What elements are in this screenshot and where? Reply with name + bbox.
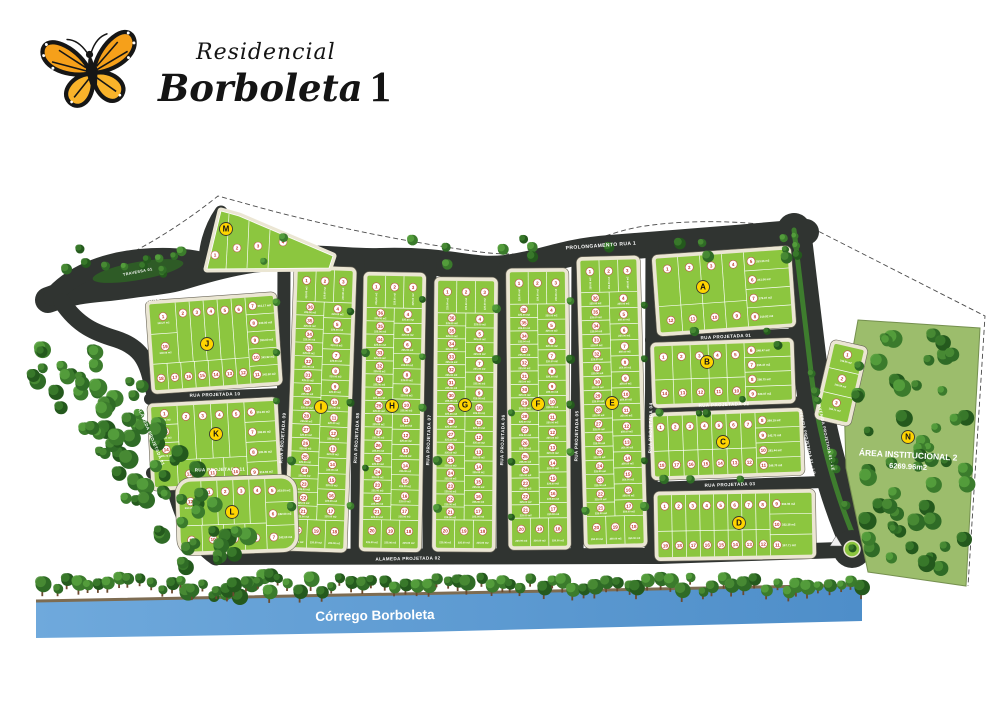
svg-text:225.00 m2: 225.00 m2	[474, 338, 487, 341]
lot-number: 18	[659, 463, 665, 468]
svg-text:220.00 m2: 220.00 m2	[328, 542, 341, 545]
lot-number: 19	[461, 529, 467, 534]
logo-number: 1	[363, 64, 392, 111]
svg-text:220.00 m2: 220.00 m2	[331, 328, 344, 331]
lot-number: 22	[301, 495, 307, 500]
lot-number: 32	[449, 367, 455, 372]
svg-text:367.71 m2: 367.71 m2	[782, 543, 796, 547]
lot-number: 18	[332, 529, 338, 534]
lot-number: 30	[305, 386, 311, 391]
lot-number: 13	[747, 542, 753, 547]
svg-text:225.00 m2: 225.00 m2	[595, 512, 608, 515]
svg-text:225.00 m2: 225.00 m2	[593, 456, 606, 459]
lot-number: 19	[388, 529, 394, 534]
svg-text:225.00 m2: 225.00 m2	[518, 340, 531, 343]
svg-text:225.00 m2: 225.00 m2	[298, 474, 311, 477]
lot-number: 26	[596, 435, 602, 440]
svg-text:225.00 m2: 225.00 m2	[372, 463, 385, 466]
svg-text:305.00 m2: 305.00 m2	[258, 449, 272, 454]
lot-number: 32	[522, 360, 528, 365]
svg-text:225.00 m2: 225.00 m2	[399, 500, 412, 503]
lot-number: 13	[732, 460, 738, 465]
svg-text:225.00 m2: 225.00 m2	[375, 292, 378, 305]
lot-number: 1	[214, 253, 217, 258]
svg-text:225.00 m2: 225.00 m2	[403, 542, 416, 545]
svg-text:225.00 m2: 225.00 m2	[474, 353, 487, 356]
svg-text:225.00 m2: 225.00 m2	[444, 477, 457, 480]
svg-text:225.00 m2: 225.00 m2	[594, 484, 607, 487]
lot-number: 14	[733, 542, 739, 547]
svg-text:225.00 m2: 225.00 m2	[374, 344, 387, 347]
lot-number: 19	[162, 344, 168, 349]
lot-number: 35	[378, 324, 384, 329]
lot-number: 12	[624, 424, 630, 429]
lot-number: 14	[550, 461, 556, 466]
lot-number: 12	[241, 370, 247, 375]
road-rua-07	[429, 264, 430, 554]
svg-text:225.00 m2: 225.00 m2	[519, 407, 532, 410]
lot-number: 31	[449, 380, 455, 385]
lot-number: 13	[680, 390, 686, 395]
svg-text:225.00 m2: 225.00 m2	[592, 386, 605, 389]
svg-text:250.00 m2: 250.00 m2	[622, 494, 635, 497]
svg-text:225.00 m2: 225.00 m2	[303, 352, 316, 355]
lot-number: 19	[613, 525, 619, 530]
svg-text:225.00 m2: 225.00 m2	[590, 316, 603, 319]
street-label: RUA PROJETADA 05	[574, 410, 580, 461]
lot-number: 32	[306, 359, 312, 364]
svg-text:225.00 m2: 225.00 m2	[304, 325, 317, 328]
block-letter: F	[536, 400, 541, 409]
svg-text:220.00 m2: 220.00 m2	[329, 391, 342, 394]
lot-number: 33	[377, 350, 383, 355]
svg-text:220.00 m2: 220.00 m2	[330, 360, 343, 363]
block-letter: N	[905, 433, 911, 442]
svg-text:220.00 m2: 220.00 m2	[547, 452, 560, 455]
svg-text:220.00 m2: 220.00 m2	[547, 467, 560, 470]
svg-text:225.00 m2: 225.00 m2	[301, 393, 314, 396]
lot-number: 31	[377, 377, 383, 382]
lot-number: 20	[594, 525, 600, 530]
svg-text:220.00 m2: 220.00 m2	[546, 330, 559, 333]
street-label: RUA PROJETADA 11	[195, 467, 246, 473]
svg-text:281.44 m2: 281.44 m2	[768, 448, 782, 452]
svg-text:225.00 m2: 225.00 m2	[401, 379, 414, 382]
butterfly-icon	[24, 12, 158, 118]
lot-number: 15	[402, 479, 408, 484]
svg-text:225.00 m2: 225.00 m2	[399, 455, 412, 458]
svg-text:320.07 m2: 320.07 m2	[758, 392, 772, 396]
block-letter: D	[736, 519, 742, 528]
lot-number: 10	[774, 522, 780, 527]
lot-number: 36	[593, 296, 599, 301]
lot-number: 20	[443, 529, 449, 534]
lot-number: 29	[448, 406, 454, 411]
svg-text:220.00 m2: 220.00 m2	[342, 287, 345, 300]
lot-number: 36	[378, 311, 384, 316]
lot-number: 17	[674, 462, 680, 467]
svg-text:250.00 m2: 250.00 m2	[591, 538, 604, 541]
lot-number: 28	[596, 407, 602, 412]
svg-text:225.00 m2: 225.00 m2	[484, 298, 487, 311]
svg-text:220.00 m2: 220.00 m2	[328, 406, 341, 409]
lot-number: 13	[330, 446, 336, 451]
lot-number: 33	[522, 347, 528, 352]
svg-text:225.00 m2: 225.00 m2	[301, 406, 314, 409]
lot-number: 18	[480, 529, 486, 534]
svg-text:220.00 m2: 220.00 m2	[555, 288, 558, 301]
block-B: 1234514131211106248.47 m27295.47 m28298.…	[650, 338, 796, 409]
lot-number: 11	[331, 415, 336, 420]
lot-number: 20	[369, 528, 375, 533]
svg-text:225.00 m2: 225.00 m2	[473, 397, 486, 400]
svg-text:225.00 m2: 225.00 m2	[445, 387, 458, 390]
svg-text:225.00 m2: 225.00 m2	[591, 358, 604, 361]
lot-number: 29	[376, 403, 382, 408]
lot-number: 16	[402, 494, 408, 499]
svg-text:250.00 m2: 250.00 m2	[610, 537, 623, 540]
lot-number: 12	[668, 318, 674, 323]
lot-number: 15	[200, 373, 206, 378]
lot-number: 24	[448, 471, 454, 476]
lot-number: 23	[375, 483, 381, 488]
svg-text:360.06 m2: 360.06 m2	[782, 502, 796, 506]
lot-number: 11	[476, 420, 481, 425]
svg-text:225.00 m2: 225.00 m2	[446, 297, 449, 310]
svg-text:225.00 m2: 225.00 m2	[374, 317, 387, 320]
block-letter: M	[223, 225, 230, 234]
svg-text:220.00 m2: 220.00 m2	[546, 360, 559, 363]
svg-text:225.00 m2: 225.00 m2	[590, 344, 603, 347]
svg-text:225.00 m2: 225.00 m2	[519, 434, 532, 437]
block-letter: I	[320, 403, 322, 412]
block-letter: J	[205, 340, 209, 349]
block-letter: A	[700, 283, 706, 292]
block-letter: L	[230, 508, 235, 517]
svg-text:242.00 m2: 242.00 m2	[279, 535, 293, 539]
lot-number: 14	[662, 391, 668, 396]
lot-number: 32	[377, 364, 383, 369]
lot-number: 16	[705, 543, 711, 548]
lot-number: 18	[631, 524, 637, 529]
svg-text:225.00 m2: 225.00 m2	[373, 423, 386, 426]
svg-text:225.00 m2: 225.00 m2	[472, 471, 485, 474]
lot-number: 10	[734, 388, 740, 393]
lot-number: 10	[332, 400, 338, 405]
svg-text:225.00 m2: 225.00 m2	[439, 541, 452, 544]
svg-text:225.00 m2: 225.00 m2	[520, 501, 533, 504]
svg-text:250.00 m2: 250.00 m2	[622, 462, 635, 465]
lot-number: 24	[375, 470, 381, 475]
svg-text:225.00 m2: 225.00 m2	[519, 394, 532, 397]
svg-text:250.00 m2: 250.00 m2	[619, 366, 632, 369]
lot-number: 25	[448, 458, 454, 463]
block-letter: K	[213, 430, 219, 439]
lot-number: 24	[523, 467, 529, 472]
lot-number: 32	[594, 352, 600, 357]
svg-text:225.00 m2: 225.00 m2	[595, 498, 608, 501]
svg-text:246.70 m2: 246.70 m2	[769, 463, 783, 467]
lot-number: 23	[448, 484, 454, 489]
svg-text:220.00 m2: 220.00 m2	[547, 513, 560, 516]
block-A: 123412111095253.36 m26241.06 m27279.97 m…	[651, 245, 796, 337]
lot-number: 26	[448, 445, 454, 450]
svg-text:225.00 m2: 225.00 m2	[473, 456, 486, 459]
svg-text:220.00 m2: 220.00 m2	[305, 286, 308, 299]
lot-number: 12	[550, 430, 556, 435]
lot-number: 21	[301, 509, 307, 514]
svg-text:225.00 m2: 225.00 m2	[445, 400, 458, 403]
lot-number: 2	[236, 246, 239, 251]
lot-number: 17	[551, 506, 557, 511]
svg-text:225.00 m2: 225.00 m2	[592, 400, 605, 403]
logo-name-line: Borboleta1	[158, 65, 391, 110]
svg-text:225.00 m2: 225.00 m2	[519, 461, 532, 464]
svg-text:312.92 m2: 312.92 m2	[259, 469, 273, 474]
svg-text:225.00 m2: 225.00 m2	[402, 334, 415, 337]
svg-text:225.00 m2: 225.00 m2	[519, 421, 532, 424]
svg-text:225.00 m2: 225.00 m2	[473, 382, 486, 385]
svg-text:225.00 m2: 225.00 m2	[400, 409, 413, 412]
lot-number: 16	[329, 493, 335, 498]
svg-text:225.00 m2: 225.00 m2	[371, 489, 384, 492]
svg-text:225.00 m2: 225.00 m2	[302, 379, 315, 382]
svg-text:225.00 m2: 225.00 m2	[446, 335, 459, 338]
lot-number: 35	[521, 320, 527, 325]
lot-number: 10	[253, 355, 259, 360]
svg-text:225.00 m2: 225.00 m2	[519, 380, 532, 383]
lot-number: 34	[449, 341, 455, 346]
svg-text:225.00 m2: 225.00 m2	[373, 410, 386, 413]
svg-text:225.00 m2: 225.00 m2	[297, 515, 310, 518]
lot-number: 17	[626, 504, 632, 509]
lot-number: 10	[550, 399, 556, 404]
lot-number: 10	[761, 448, 767, 453]
lot-number: 11	[716, 389, 721, 394]
svg-text:225.00 m2: 225.00 m2	[474, 323, 487, 326]
svg-text:225.00 m2: 225.00 m2	[373, 370, 386, 373]
block-letter: G	[462, 401, 468, 410]
lot-number: 29	[304, 400, 310, 405]
lot-number: 11	[255, 372, 261, 377]
svg-text:332.38 m2: 332.38 m2	[782, 522, 796, 526]
lot-number: 12	[403, 433, 409, 438]
svg-text:225.00 m2: 225.00 m2	[473, 427, 486, 430]
svg-text:220.00 m2: 220.00 m2	[546, 406, 559, 409]
block-J: 23456181716151413127361.17 m28330.00 m29…	[145, 292, 283, 395]
svg-text:225.00 m2: 225.00 m2	[445, 413, 458, 416]
lot-number: 14	[164, 447, 170, 452]
svg-text:220.00 m2: 220.00 m2	[324, 515, 337, 518]
lot-number: 29	[522, 401, 528, 406]
svg-text:253.00 m2: 253.00 m2	[277, 488, 291, 492]
lot-number: 30	[522, 387, 528, 392]
lot-number: 33	[594, 338, 600, 343]
lot-number: 11	[690, 316, 696, 321]
svg-text:225.00 m2: 225.00 m2	[519, 487, 532, 490]
lot-number: 15	[329, 478, 335, 483]
svg-text:220.00 m2: 220.00 m2	[325, 500, 338, 503]
svg-text:225.00 m2: 225.00 m2	[593, 428, 606, 431]
svg-text:225.00 m2: 225.00 m2	[472, 501, 485, 504]
svg-text:225.00 m2: 225.00 m2	[399, 470, 412, 473]
lot-number: 31	[594, 366, 600, 371]
logo-text: Residencial Borboleta1	[158, 12, 391, 110]
svg-text:220.00 m2: 220.00 m2	[547, 437, 560, 440]
lot-number: 14	[625, 456, 631, 461]
svg-text:220.00 m2: 220.00 m2	[323, 286, 326, 299]
svg-text:225.00 m2: 225.00 m2	[593, 442, 606, 445]
lot-number: 24	[597, 463, 603, 468]
svg-text:225.00 m2: 225.00 m2	[473, 368, 486, 371]
svg-text:250.00 m2: 250.00 m2	[628, 537, 641, 540]
lot-number: 25	[597, 449, 603, 454]
lot-number: 10	[712, 315, 718, 320]
lot-number: 22	[598, 491, 604, 496]
svg-text:250.00 m2: 250.00 m2	[621, 430, 634, 433]
svg-text:225.00 m2: 225.00 m2	[445, 439, 458, 442]
svg-text:220.00 m2: 220.00 m2	[518, 289, 521, 302]
svg-text:225.00 m2: 225.00 m2	[400, 440, 413, 443]
svg-text:225.00 m2: 225.00 m2	[446, 348, 459, 351]
lot-number: 34	[307, 332, 313, 337]
svg-text:225.00 m2: 225.00 m2	[372, 436, 385, 439]
svg-text:225.00 m2: 225.00 m2	[518, 314, 531, 317]
svg-text:225.00 m2: 225.00 m2	[303, 338, 316, 341]
svg-text:225.00 m2: 225.00 m2	[444, 503, 457, 506]
svg-text:225.00 m2: 225.00 m2	[393, 292, 396, 305]
lot-number: 33	[306, 345, 312, 350]
lot-number: 18	[406, 529, 412, 534]
lot-number: 27	[596, 421, 602, 426]
lot-number: 15	[719, 542, 725, 547]
lot-number: 28	[448, 419, 454, 424]
lot-number: 18	[677, 543, 683, 548]
lot-number: 18	[158, 376, 164, 381]
svg-text:225.00 m2: 225.00 m2	[304, 311, 317, 314]
lot-number: 13	[624, 440, 630, 445]
svg-text:225.00 m2: 225.00 m2	[472, 515, 485, 518]
svg-text:250.00 m2: 250.00 m2	[620, 398, 633, 401]
svg-text:225.00 m2: 225.00 m2	[401, 349, 414, 352]
lot-number: 36	[521, 307, 527, 312]
lot-number: 12	[761, 542, 767, 547]
block-letter: B	[704, 358, 710, 367]
lot-number: 18	[555, 527, 561, 532]
lot-number: 10	[476, 405, 482, 410]
svg-text:220.00 m2: 220.00 m2	[546, 391, 559, 394]
svg-text:225.00 m2: 225.00 m2	[518, 327, 531, 330]
svg-text:220.00 m2: 220.00 m2	[546, 421, 559, 424]
svg-text:220.00 m2: 220.00 m2	[330, 344, 343, 347]
svg-text:225.00 m2: 225.00 m2	[372, 450, 385, 453]
lot-number: 21	[374, 509, 380, 514]
svg-text:220.00 m2: 220.00 m2	[326, 469, 339, 472]
svg-text:295.47 m2: 295.47 m2	[757, 363, 771, 367]
block-letter: E	[609, 399, 615, 408]
svg-text:225.00 m2: 225.00 m2	[371, 503, 384, 506]
lot-number: 27	[376, 430, 382, 435]
lot-number: 12	[698, 390, 704, 395]
svg-text:225.00 m2: 225.00 m2	[465, 297, 468, 310]
svg-text:225.00 m2: 225.00 m2	[589, 302, 602, 305]
svg-text:250.00 m2: 250.00 m2	[617, 302, 630, 305]
svg-text:225.00 m2: 225.00 m2	[446, 322, 459, 325]
lot-number: 11	[404, 418, 409, 423]
svg-text:225.00 m2: 225.00 m2	[374, 357, 387, 360]
svg-text:225.00 m2: 225.00 m2	[519, 474, 532, 477]
svg-text:250.00 m2: 250.00 m2	[623, 510, 636, 513]
svg-text:220.00 m2: 220.00 m2	[328, 422, 341, 425]
lot-number: 15	[550, 476, 556, 481]
svg-text:225.00 m2: 225.00 m2	[519, 447, 532, 450]
lot-number: 20	[519, 527, 525, 532]
lot-number: 14	[403, 463, 409, 468]
lot-number: 13	[227, 371, 233, 376]
lot-number: 22	[448, 497, 454, 502]
svg-text:225.00 m2: 225.00 m2	[590, 330, 603, 333]
svg-text:298.75 m2: 298.75 m2	[757, 377, 771, 381]
lot-number: 31	[305, 373, 311, 378]
svg-text:225.00 m2: 225.00 m2	[472, 486, 485, 489]
svg-text:225.00 m2: 225.00 m2	[518, 367, 531, 370]
svg-text:225.00 m2: 225.00 m2	[445, 464, 458, 467]
lot-number: 13	[476, 450, 482, 455]
svg-text:220.00 m2: 220.00 m2	[547, 498, 560, 501]
svg-text:225.00 m2: 225.00 m2	[299, 447, 312, 450]
lot-number: 36	[308, 305, 314, 310]
lot-number: 10	[623, 392, 629, 397]
street-label: RUA PROJETADA 04	[648, 402, 654, 453]
lot-number: 23	[301, 482, 307, 487]
svg-text:225.00 m2: 225.00 m2	[401, 394, 414, 397]
svg-text:220.00 m2: 220.00 m2	[552, 539, 565, 542]
lot-number: 14	[330, 462, 336, 467]
svg-text:225.00 m2: 225.00 m2	[445, 361, 458, 364]
svg-text:242.00 m2: 242.00 m2	[278, 512, 292, 516]
svg-text:220.00 m2: 220.00 m2	[329, 375, 342, 378]
svg-text:225.00 m2: 225.00 m2	[366, 541, 379, 544]
svg-text:220.00 m2: 220.00 m2	[534, 539, 547, 542]
svg-text:250.00 m2: 250.00 m2	[620, 414, 633, 417]
svg-text:248.47 m2: 248.47 m2	[756, 348, 770, 352]
lot-number: 11	[761, 463, 766, 468]
lot-number: 24	[302, 468, 308, 473]
svg-text:250.00 m2: 250.00 m2	[589, 277, 592, 290]
lot-number: 26	[303, 441, 309, 446]
svg-text:220.00 m2: 220.00 m2	[546, 345, 559, 348]
lot-number: 27	[522, 427, 528, 432]
svg-text:225.00 m2: 225.00 m2	[384, 541, 397, 544]
lot-number: 14	[476, 465, 482, 470]
svg-text:225.00 m2: 225.00 m2	[458, 541, 471, 544]
lot-number: 34	[522, 334, 528, 339]
road-rua-08	[357, 260, 358, 554]
block-letter: H	[389, 402, 395, 411]
lot-number: 19	[663, 543, 669, 548]
svg-text:225.00 m2: 225.00 m2	[412, 293, 415, 306]
lot-number: 15	[476, 479, 482, 484]
lot-number: 16	[186, 374, 192, 379]
svg-text:225.00 m2: 225.00 m2	[400, 425, 413, 428]
svg-text:220.00 m2: 220.00 m2	[327, 437, 340, 440]
svg-text:225.00 m2: 225.00 m2	[298, 488, 311, 491]
lot-number: 17	[172, 375, 178, 380]
svg-text:225.00 m2: 225.00 m2	[594, 470, 607, 473]
lot-number: 22	[523, 494, 529, 499]
lot-number: 27	[303, 427, 309, 432]
svg-text:250.00 m2: 250.00 m2	[622, 478, 635, 481]
